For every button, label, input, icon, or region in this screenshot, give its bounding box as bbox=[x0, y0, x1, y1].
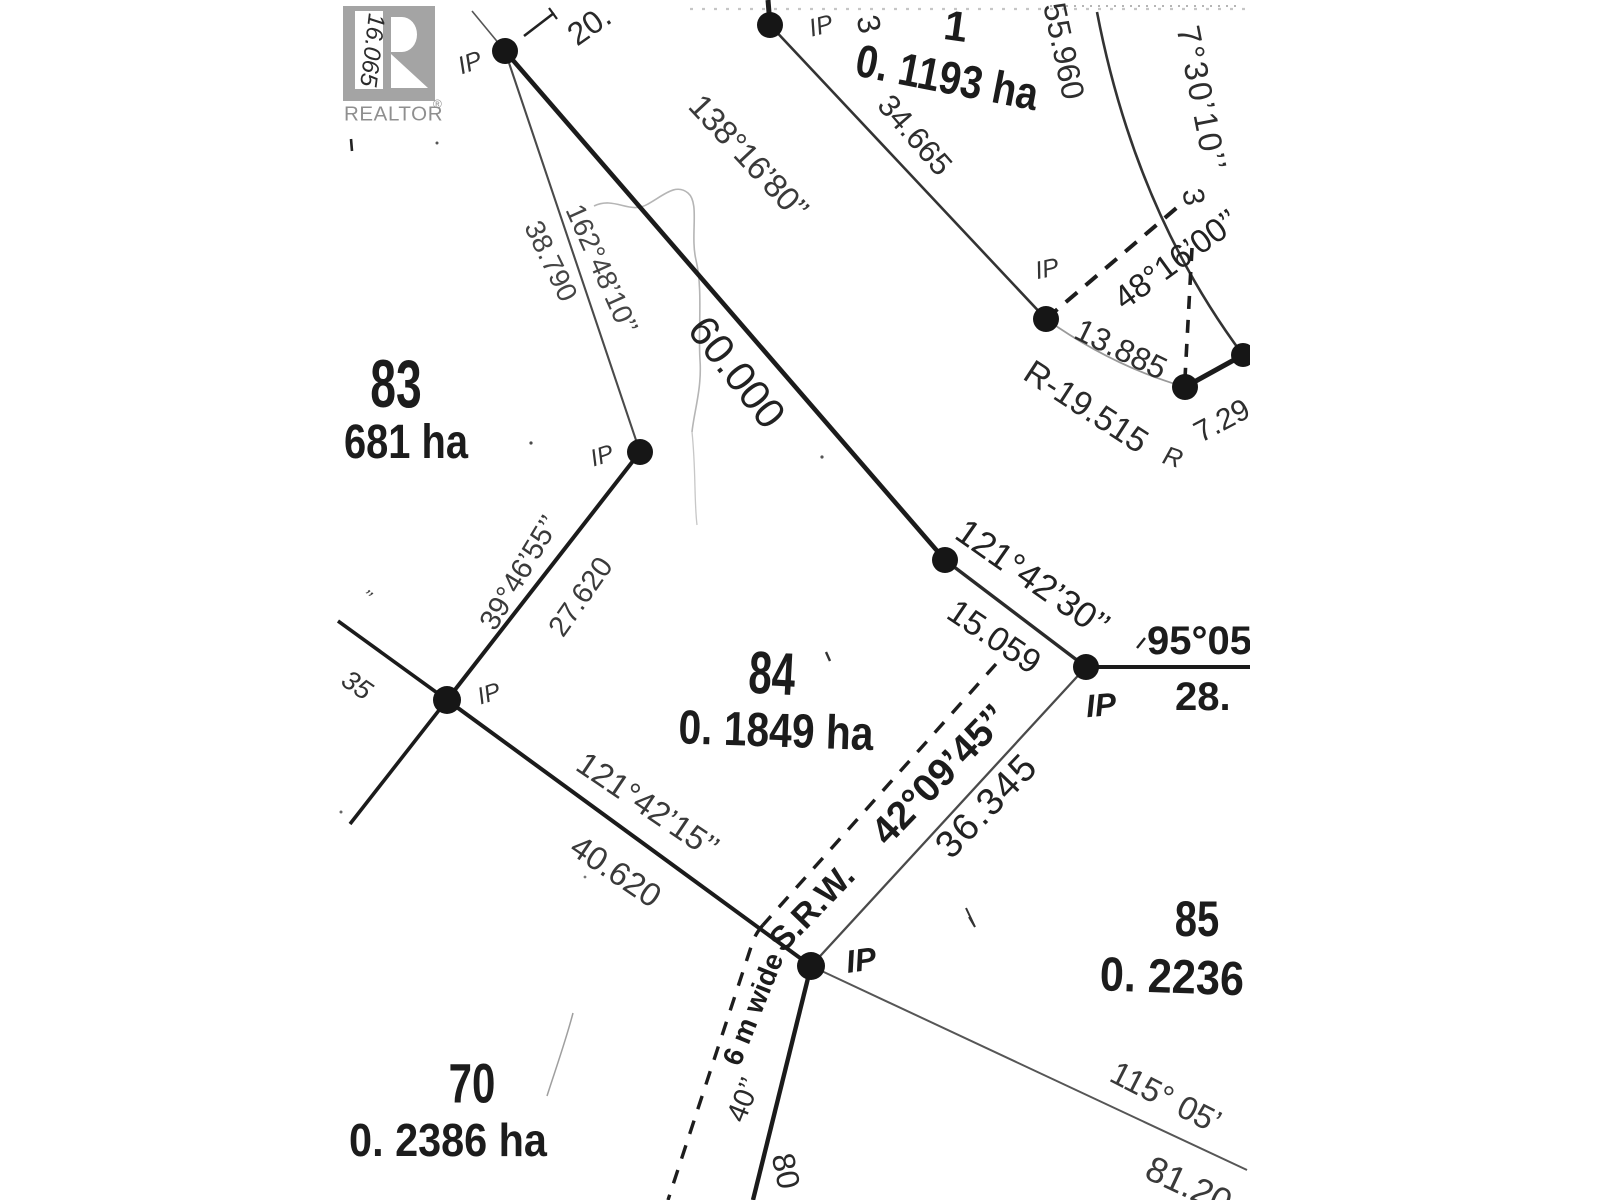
svg-text:115° 05’: 115° 05’ bbox=[1105, 1054, 1228, 1141]
svg-text:IP: IP bbox=[806, 9, 836, 42]
svg-text:0. 2386 ha: 0. 2386 ha bbox=[349, 1115, 548, 1167]
svg-text:IP: IP bbox=[844, 940, 880, 980]
svg-text:138°16’80’’: 138°16’80’’ bbox=[682, 87, 817, 227]
svg-text:IP: IP bbox=[1084, 686, 1118, 725]
svg-text:0. 2236: 0. 2236 bbox=[1099, 947, 1245, 1006]
svg-text:3: 3 bbox=[1175, 186, 1210, 208]
svg-text:IP: IP bbox=[587, 440, 617, 473]
svg-text:R: R bbox=[1159, 440, 1186, 474]
svg-text:6 m wide: 6 m wide bbox=[716, 948, 789, 1069]
svg-text:IP: IP bbox=[1033, 253, 1062, 285]
svg-text:40.620: 40.620 bbox=[564, 827, 668, 914]
svg-text:80: 80 bbox=[765, 1150, 808, 1192]
svg-text:1: 1 bbox=[941, 1, 971, 51]
svg-text:40’’: 40’’ bbox=[721, 1073, 767, 1126]
svg-text:681 ha: 681 ha bbox=[344, 415, 468, 468]
svg-text:48°16’00’’: 48°16’00’’ bbox=[1107, 202, 1246, 317]
svg-text:3: 3 bbox=[850, 12, 889, 37]
svg-text:55.960: 55.960 bbox=[1036, 0, 1092, 103]
svg-text:28.: 28. bbox=[1175, 675, 1231, 719]
svg-text:84: 84 bbox=[747, 638, 797, 708]
svg-text:’’: ’’ bbox=[355, 586, 376, 608]
svg-text:REALTOR: REALTOR bbox=[344, 103, 443, 126]
svg-text:7°30’10’’: 7°30’10’’ bbox=[1170, 22, 1235, 175]
svg-text:70: 70 bbox=[449, 1053, 496, 1115]
svg-text:13.885: 13.885 bbox=[1069, 311, 1173, 386]
svg-text:83: 83 bbox=[370, 346, 421, 422]
svg-text:85: 85 bbox=[1175, 891, 1219, 947]
svg-text:35: 35 bbox=[336, 664, 379, 706]
svg-text:7.29: 7.29 bbox=[1188, 393, 1255, 450]
svg-text:0. 1849 ha: 0. 1849 ha bbox=[678, 701, 876, 761]
svg-text:®: ® bbox=[433, 97, 442, 111]
svg-text:IP: IP bbox=[474, 678, 504, 711]
svg-text:IP: IP bbox=[454, 46, 486, 81]
svg-text:60.000: 60.000 bbox=[679, 307, 795, 437]
svg-text:95°05: 95°05 bbox=[1147, 619, 1252, 663]
svg-text:20.: 20. bbox=[560, 0, 617, 53]
svg-text:81.20: 81.20 bbox=[1140, 1147, 1239, 1200]
